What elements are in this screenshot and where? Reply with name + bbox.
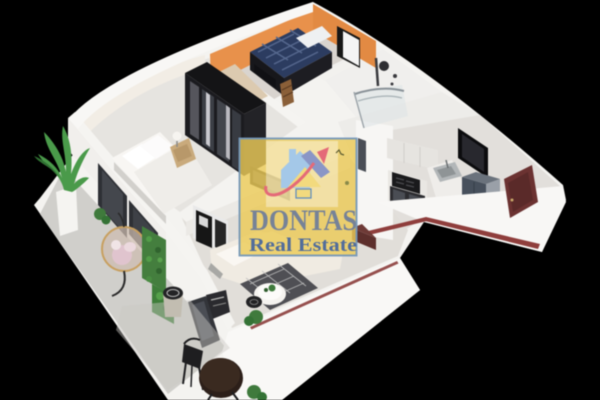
svg-text:Real Estate: Real Estate <box>249 235 357 256</box>
svg-text:DONTAS: DONTAS <box>250 204 357 237</box>
